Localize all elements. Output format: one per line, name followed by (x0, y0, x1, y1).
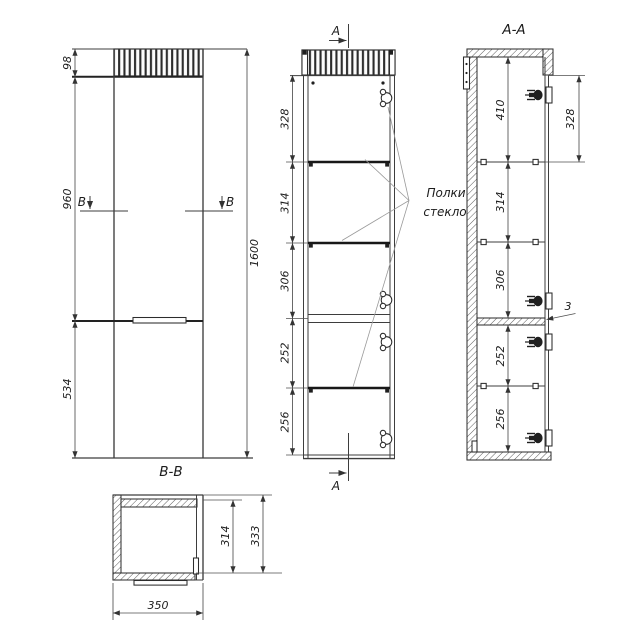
technical-drawing-page: В В 98 960 534 1600 В-В (0, 0, 642, 642)
annotation-glass-shelves-line2: стекло (423, 205, 466, 219)
section-marker-b-left: В (78, 195, 128, 211)
side-panel-section (467, 49, 477, 460)
annotation-glass-shelves-line1: Полки (426, 186, 465, 200)
dim-314: 314 (219, 526, 232, 547)
plan-view: 314 333 350 (113, 495, 282, 620)
dim-314: 314 (494, 192, 507, 213)
front-view: В В 98 960 534 1600 В-В (61, 49, 261, 480)
hinge-icon (525, 334, 552, 350)
door-handle-plan (134, 581, 187, 586)
section-aa-title: А-А (501, 22, 525, 38)
door-handle (133, 318, 186, 324)
glass-shelves-leaders (342, 107, 409, 387)
hinge-icon (525, 293, 552, 309)
dim-252: 252 (494, 346, 507, 367)
dim-328: 328 (564, 109, 577, 130)
dim-256: 256 (279, 412, 292, 433)
dim-350: 350 (148, 599, 169, 612)
hinge-icon (525, 87, 552, 103)
dim-314: 314 (279, 193, 292, 214)
dim-306: 306 (494, 270, 507, 291)
section-aa-view: А-А 410 314 (464, 22, 586, 460)
section-letter-b-left: В (78, 195, 86, 209)
dim-534: 534 (61, 379, 74, 400)
dim-3: 3 (565, 300, 572, 313)
section-marker-b-right: В (185, 195, 234, 211)
dim-252: 252 (279, 343, 292, 364)
section-letter-a-bottom: А (331, 479, 340, 493)
dim-410: 410 (494, 100, 507, 121)
divider-panel-section (477, 318, 545, 325)
front-view-label: В-В (159, 464, 182, 480)
top-panel-section (467, 49, 545, 57)
cornice-ribbed-panel (302, 50, 395, 75)
dim-333: 333 (249, 526, 262, 547)
hinge-icon (525, 430, 552, 446)
section-marker-a-top: А (329, 24, 349, 48)
mounting-bracket (464, 57, 470, 89)
dim-328: 328 (279, 109, 292, 130)
dim-306: 306 (279, 271, 292, 292)
dim-98: 98 (61, 56, 74, 70)
back-panel-plan (121, 499, 197, 507)
side-panel-plan (113, 495, 121, 580)
cornice-ribbed-panel (114, 49, 203, 76)
dim-1600: 1600 (248, 239, 261, 267)
door-panel-plan (113, 573, 195, 580)
dim-960: 960 (61, 189, 74, 210)
vertical-section-view: 328 314 306 252 256 А А Полки стекло (279, 24, 467, 493)
dim-256: 256 (494, 409, 507, 430)
section-letter-b-right: В (226, 195, 234, 209)
door-bracket (194, 558, 199, 574)
section-marker-a-bottom: А (329, 433, 349, 493)
section-letter-a-top: А (331, 24, 340, 38)
cabinet-drawing-svg: В В 98 960 534 1600 В-В (0, 0, 642, 642)
bottom-panel-section (467, 452, 551, 460)
